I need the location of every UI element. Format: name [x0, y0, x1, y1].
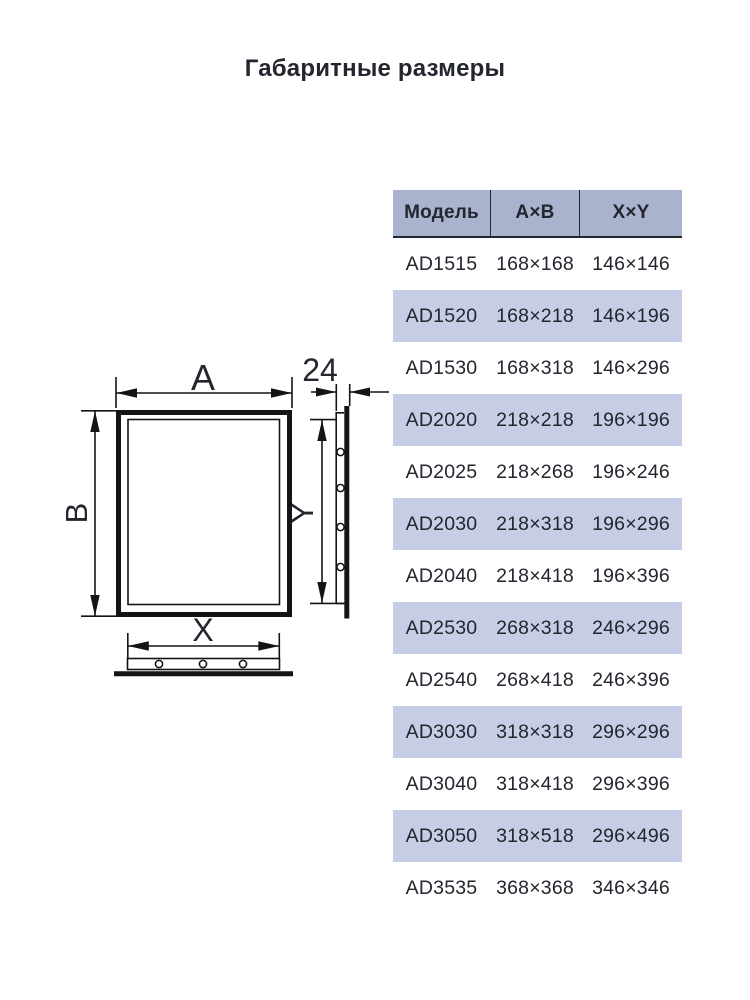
dimensional-drawing: A B X [40, 340, 400, 700]
cell-model: AD1520 [393, 290, 490, 342]
table-row: AD3535368×368346×346 [393, 862, 682, 914]
cell-xy: 196×196 [580, 394, 682, 446]
cell-model: AD2025 [393, 446, 490, 498]
cell-ab: 368×368 [490, 862, 580, 914]
table-header-ab: А×В [490, 190, 580, 236]
cell-model: AD1515 [393, 238, 490, 290]
cell-model: AD3040 [393, 758, 490, 810]
mounting-hole [337, 448, 344, 455]
cell-xy: 196×396 [580, 550, 682, 602]
dim-label-a: A [191, 357, 215, 398]
mounting-hole [239, 660, 246, 667]
page: Габаритные размеры A B [0, 0, 750, 1000]
cell-model: AD3030 [393, 706, 490, 758]
cell-ab: 218×318 [490, 498, 580, 550]
cell-ab: 168×318 [490, 342, 580, 394]
table-row: AD1530168×318146×296 [393, 342, 682, 394]
cell-xy: 146×196 [580, 290, 682, 342]
table-row: AD3040318×418296×396 [393, 758, 682, 810]
cell-xy: 196×246 [580, 446, 682, 498]
size-table-body: AD1515168×168146×146AD1520168×218146×196… [393, 238, 682, 914]
table-row: AD1515168×168146×146 [393, 238, 682, 290]
page-title: Габаритные размеры [0, 55, 750, 83]
dim-label-x: X [192, 612, 213, 648]
cell-model: AD3050 [393, 810, 490, 862]
cell-model: AD2020 [393, 394, 490, 446]
side-view [336, 406, 347, 619]
cell-xy: 296×296 [580, 706, 682, 758]
mounting-hole [199, 660, 206, 667]
cell-ab: 318×518 [490, 810, 580, 862]
cell-xy: 246×396 [580, 654, 682, 706]
cell-model: AD2030 [393, 498, 490, 550]
cell-model: AD2530 [393, 602, 490, 654]
cell-model: AD2540 [393, 654, 490, 706]
cell-xy: 146×146 [580, 238, 682, 290]
cell-ab: 268×418 [490, 654, 580, 706]
dimension-a: A [116, 357, 292, 408]
table-header: Модель А×В X×Y [393, 190, 682, 238]
cell-xy: 146×296 [580, 342, 682, 394]
table-row: AD2530268×318246×296 [393, 602, 682, 654]
table-header-xy: X×Y [580, 190, 682, 236]
cell-model: AD1530 [393, 342, 490, 394]
table-row: AD2020218×218196×196 [393, 394, 682, 446]
cell-ab: 218×268 [490, 446, 580, 498]
cell-xy: 296×396 [580, 758, 682, 810]
dim-label-b: B [59, 503, 94, 524]
table-row: AD1520168×218146×196 [393, 290, 682, 342]
cell-xy: 346×346 [580, 862, 682, 914]
table-row: AD3050318×518296×496 [393, 810, 682, 862]
mounting-hole [337, 563, 344, 570]
dim-label-y: Y [285, 503, 320, 524]
cell-xy: 196×296 [580, 498, 682, 550]
size-table: Модель А×В X×Y AD1515168×168146×146AD152… [393, 190, 682, 914]
cell-ab: 218×418 [490, 550, 580, 602]
cell-ab: 318×418 [490, 758, 580, 810]
mounting-hole [337, 523, 344, 530]
cell-model: AD2040 [393, 550, 490, 602]
mounting-hole [155, 660, 162, 667]
cell-ab: 268×318 [490, 602, 580, 654]
table-row: AD2030218×318196×296 [393, 498, 682, 550]
mounting-hole [337, 484, 344, 491]
cell-ab: 168×218 [490, 290, 580, 342]
front-view [119, 413, 290, 615]
dim-label-depth: 24 [302, 352, 338, 388]
cell-ab: 218×218 [490, 394, 580, 446]
table-header-model: Модель [393, 190, 490, 236]
cell-ab: 168×168 [490, 238, 580, 290]
front-outer-frame [119, 413, 290, 615]
table-row: AD2540268×418246×396 [393, 654, 682, 706]
table-row: AD2040218×418196×396 [393, 550, 682, 602]
cell-ab: 318×318 [490, 706, 580, 758]
dimension-depth: 24 [302, 352, 389, 411]
table-row: AD3030318×318296×296 [393, 706, 682, 758]
cell-xy: 246×296 [580, 602, 682, 654]
table-row: AD2025218×268196×246 [393, 446, 682, 498]
dimension-b: B [59, 411, 116, 616]
cell-model: AD3535 [393, 862, 490, 914]
cell-xy: 296×496 [580, 810, 682, 862]
bottom-view: X [114, 612, 293, 674]
